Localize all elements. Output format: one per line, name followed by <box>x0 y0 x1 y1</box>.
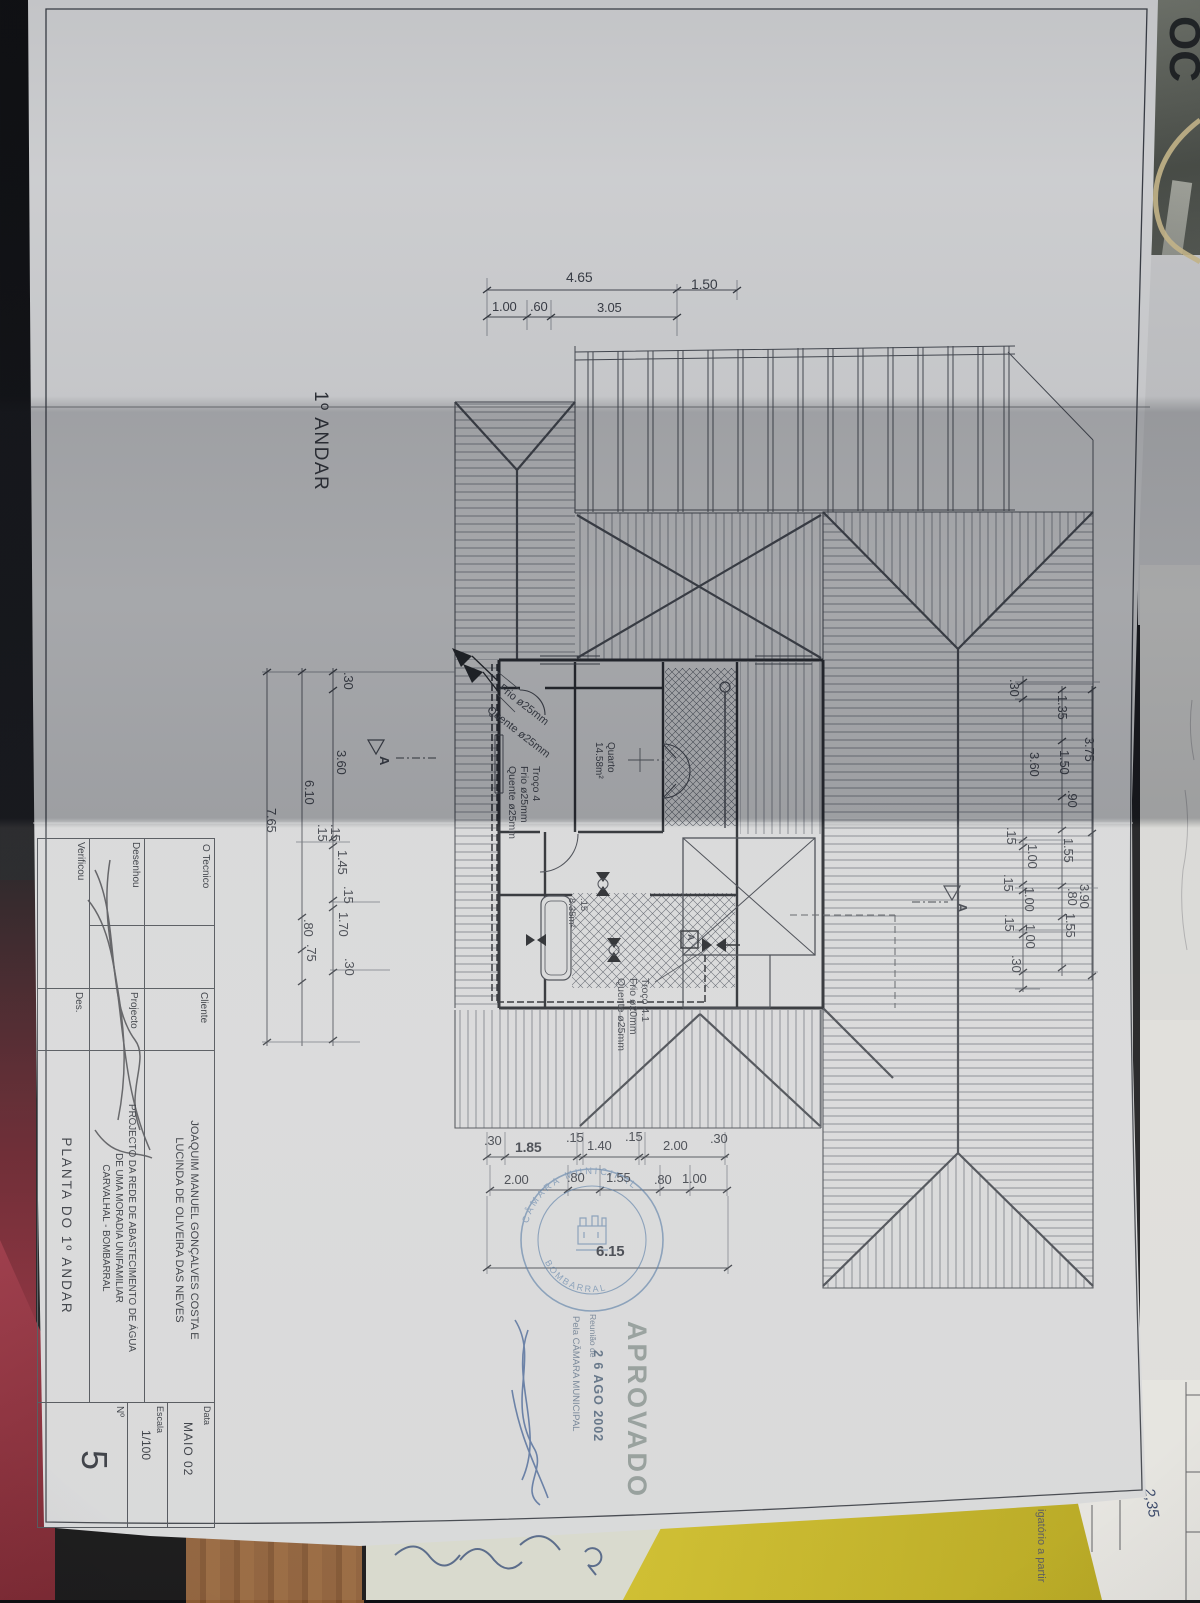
dim-bottom: 1.55 <box>606 1170 631 1185</box>
dim-top: 4.65 <box>566 269 592 285</box>
room-label-quarto: Quarto 14.58m² <box>592 742 616 779</box>
dim-right: 1.00 <box>1022 887 1037 912</box>
svg-text:BOMBARRAL: BOMBARRAL <box>543 1258 608 1294</box>
tb-project: PROJECTO DA REDE DE ABASTECIMENTO DE ÁGU… <box>99 1056 138 1400</box>
room-area: 14.58m² <box>592 742 604 779</box>
dim-right: 1.55 <box>1063 913 1078 938</box>
dim-bottom: .80 <box>654 1172 671 1187</box>
dim-top: 1.50 <box>691 276 717 292</box>
pergola-beams <box>575 346 1093 512</box>
project-line2: DE UMA MORADIA UNIFAMILIAR <box>112 1056 125 1400</box>
dim-right-outer: 3.75 <box>1082 737 1097 762</box>
dim-right: .30 <box>1009 955 1024 972</box>
tb-sheet-title: PLANTA DO 1º ANDAR <box>59 1050 74 1402</box>
pipe-label-troco4: Troço 4 Frio ø25mm Quente ø25mm <box>506 766 542 839</box>
tb-label-projecto: Projecto <box>128 992 139 1029</box>
tb-label-verificou: Verificou <box>75 842 86 880</box>
stamp-approved: APROVADO <box>621 1321 652 1499</box>
client-line2: LUCINDA DE OLIVEIRA DAS NEVES <box>171 1060 186 1400</box>
project-line3: CARVALHAL - BOMBARRAL <box>99 1056 112 1400</box>
dim-top: 1.00 <box>492 299 517 314</box>
cord <box>1156 120 1200 262</box>
dim-left: 3.60 <box>334 750 349 775</box>
dim-bottom: .15 <box>566 1130 583 1145</box>
dim-top: .60 <box>530 299 547 314</box>
form-grid-lines <box>1092 1382 1200 1600</box>
tb-label-numero: Nº <box>114 1406 125 1417</box>
tb-label-data: Data <box>202 1406 212 1425</box>
dim-left-outer: 7.65 <box>264 808 279 833</box>
dim-right-outer: 3.90 <box>1077 884 1092 909</box>
stamp-date: 2 6 AGO 2002 <box>591 1350 605 1442</box>
section-marker-letter: A <box>377 756 392 765</box>
dim-left: .15 <box>328 824 343 841</box>
dim-right: 1.00 <box>1025 844 1040 869</box>
section-marker-letter: A <box>955 903 970 912</box>
stamp-by: Pela CÂMARA MUNICIPAL <box>570 1316 581 1431</box>
troco4-name: Troço 4 <box>530 766 542 839</box>
title-block: O Tecnico Cliente JOAQUIM MANUEL GONÇALV… <box>37 838 215 1528</box>
dim-left: .15 <box>341 886 356 903</box>
dim-left: .75 <box>304 944 319 961</box>
dim-right: 1.50 <box>1057 750 1072 775</box>
dim-bottom: 1.85 <box>515 1139 541 1155</box>
dim-bottom: .80 <box>567 1170 584 1185</box>
dim-bottom: 1.40 <box>587 1138 612 1153</box>
dim-left: 1.45 <box>335 850 350 875</box>
dim-bottom: 2.00 <box>663 1138 688 1153</box>
tb-label-desenhou: Desenhou <box>130 842 141 888</box>
troco41-name: Troço 4.1 <box>639 978 651 1051</box>
dim-bottom: 2.00 <box>504 1172 529 1187</box>
tb-sheet-number: 5 <box>73 1450 115 1470</box>
dim-right: 1.35 <box>1055 695 1070 720</box>
project-line1: PROJECTO DA REDE DE ABASTECIMENTO DE ÁGU… <box>125 1056 138 1400</box>
pipe-label-troco41: Troço 4.1 Frio ø20mm Quente ø25mm <box>615 978 651 1051</box>
dim-left: .30 <box>342 958 357 975</box>
dim-bottom: 1.00 <box>682 1171 707 1186</box>
dim-top: 3.05 <box>597 300 622 315</box>
dim-right: 1.55 <box>1061 838 1076 863</box>
dim-right: 3.60 <box>1027 752 1042 777</box>
client-line1: JOAQUIM MANUEL GONÇALVES COSTA E <box>186 1060 201 1400</box>
valve-box-letter: A <box>686 934 696 941</box>
tb-client: JOAQUIM MANUEL GONÇALVES COSTA E LUCINDA… <box>171 1060 201 1400</box>
tb-date: MAIO 02 <box>181 1422 195 1476</box>
tb-label-cliente: Cliente <box>198 992 209 1023</box>
room-label-bath: .15 8.35m² <box>565 898 589 928</box>
dim-bottom: .30 <box>484 1133 501 1148</box>
floor-label: 1º ANDAR <box>309 391 331 491</box>
dim-right: 1.00 <box>1023 924 1038 949</box>
handwriting-scribbles <box>395 1536 601 1575</box>
tb-scale: 1/100 <box>139 1430 153 1460</box>
dim-right: .15 <box>1001 874 1016 891</box>
dim-right: .90 <box>1065 790 1080 807</box>
dim-bottom: .30 <box>710 1131 727 1146</box>
municipal-stamp: CÂMARA MUNICIPAL BOMBARRAL <box>520 1166 663 1311</box>
tb-label-des: Des. <box>73 992 84 1013</box>
troco41-frio: Frio ø20mm <box>627 978 639 1051</box>
stamp-ring-bottom: BOMBARRAL <box>543 1258 608 1294</box>
dim-right: .30 <box>1007 679 1022 696</box>
stamp-signature <box>512 1320 548 1505</box>
pencil-marks <box>1182 700 1194 950</box>
dim-left: .30 <box>341 672 356 689</box>
troco4-quente: Quente ø25mm <box>506 766 518 839</box>
tb-label-escala: Escala <box>155 1406 165 1433</box>
bath-area: 8.35m² <box>565 898 577 928</box>
room-name: Quarto <box>604 742 616 779</box>
troco41-quente: Quente ø25mm <box>615 978 627 1051</box>
tb-label-tecnico: O Tecnico <box>200 844 211 888</box>
photo-of-floor-plan: { "sheet": { "floor_label": "1º ANDAR" }… <box>0 0 1200 1600</box>
dim-left: 1.70 <box>336 912 351 937</box>
bath-dim: .15 <box>577 898 589 928</box>
dim-right: .15 <box>1004 827 1019 844</box>
roof-hatching <box>455 402 1093 1288</box>
dim-left-mid: 6.10 <box>302 780 317 805</box>
dim-bottom: .15 <box>625 1129 642 1144</box>
troco4-frio: Frio ø25mm <box>518 766 530 839</box>
dim-right: .15 <box>1002 914 1017 931</box>
dim-left: .80 <box>301 919 316 936</box>
dim-bottom-total: 6.15 <box>596 1243 624 1260</box>
